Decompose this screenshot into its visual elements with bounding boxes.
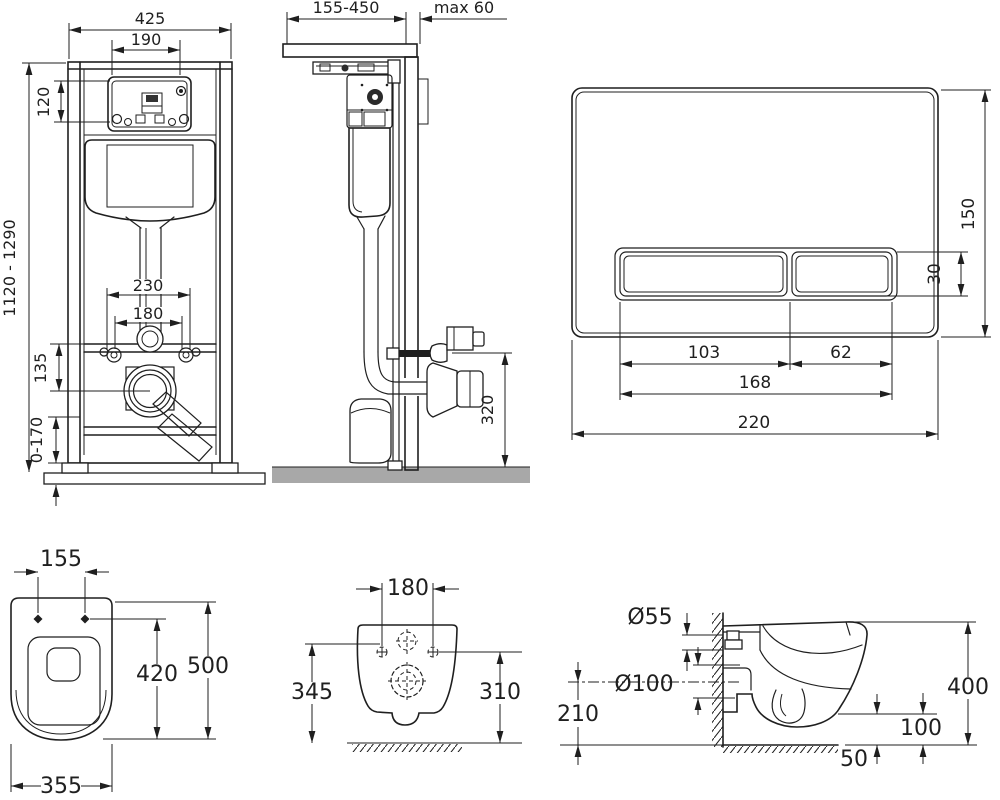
big-flush-button: [620, 252, 787, 296]
bowl-profile: [723, 622, 867, 727]
floor-hatch-side: [723, 746, 838, 753]
service-opening: [108, 77, 191, 131]
dim-label-420: 420: [136, 662, 178, 687]
wall-section: [405, 57, 418, 470]
dim-label-230: 230: [133, 276, 164, 295]
wall-bracket: [418, 79, 428, 124]
dim-label-220: 220: [738, 413, 770, 433]
frame-side-view: 155-450 max 60 320: [272, 0, 530, 483]
dim-label-155: 155: [40, 547, 82, 572]
bowl-side-view: Ø55 Ø100 210 400 100 50: [557, 605, 990, 772]
outlet-stub: [723, 668, 751, 690]
installation-dimensions-drawing: 425 190 120 1120 - 1290 230 180 135 0-17…: [0, 0, 1000, 800]
dim-label-135: 135: [31, 353, 50, 384]
wall-top-section: [283, 44, 417, 57]
inlet-stub: [727, 631, 739, 640]
drain-assembly: [100, 326, 212, 461]
dim-label-120: 120: [34, 87, 53, 118]
dim-label-max-60: max 60: [434, 0, 494, 17]
flush-plate-dimensions: 150 30 103 62 168 220: [572, 90, 991, 440]
small-flush-button: [792, 252, 892, 296]
dim-label-100: 100: [900, 716, 942, 741]
dim-label-500: 500: [187, 654, 229, 679]
frame-front-view: 425 190 120 1120 - 1290 230 180 135 0-17…: [0, 9, 265, 506]
top-bracket: [313, 60, 400, 83]
frame-front-dimensions: 425 190 120 1120 - 1290 230 180 135 0-17…: [0, 9, 231, 506]
bowl-top-view: 155 500 420 355: [11, 547, 229, 799]
dim-label-345: 345: [291, 680, 333, 705]
inlet-pipe: [399, 350, 432, 357]
dim-label-210: 210: [557, 702, 599, 727]
wall-hatch: [712, 613, 723, 747]
technical-drawing-page: 425 190 120 1120 - 1290 230 180 135 0-17…: [0, 0, 1000, 800]
dim-label-dia100: Ø100: [614, 672, 673, 697]
dim-label-155-450: 155-450: [313, 0, 380, 17]
outlet-hole: [388, 662, 426, 700]
dim-label-dia55: Ø55: [627, 605, 672, 630]
right-fixing-hole: [81, 615, 90, 624]
dim-label-320: 320: [478, 395, 497, 426]
left-fixing-hole: [34, 615, 43, 624]
flush-plate-view: 150 30 103 62 168 220: [572, 88, 991, 440]
dim-label-355: 355: [40, 774, 82, 799]
dim-label-400: 400: [947, 675, 989, 700]
dim-label-425: 425: [135, 9, 166, 28]
floor-slab: [44, 473, 265, 484]
dim-label-62: 62: [830, 343, 852, 363]
bowl-opening: [47, 648, 80, 681]
outlet-trap-side: [350, 352, 483, 463]
dim-label-103: 103: [688, 343, 720, 363]
cistern-side: [347, 75, 392, 352]
dim-label-150: 150: [959, 198, 979, 230]
dim-label-50: 50: [840, 747, 868, 772]
dim-label-180-bowl: 180: [387, 576, 429, 601]
bowl-top-dimensions: 155 500 420 355: [11, 547, 229, 799]
floor-hatch-rear: [352, 744, 462, 752]
water-inlet-assembly: [387, 327, 484, 362]
dim-label-1120-1290: 1120 - 1290: [0, 219, 19, 316]
right-foot: [212, 463, 238, 473]
dim-label-180-frame: 180: [133, 304, 164, 323]
bowl-rear-view: 180 345 310: [290, 576, 522, 752]
dim-label-310: 310: [479, 680, 521, 705]
bowl-rear-dimensions: 180 345 310: [290, 576, 522, 743]
dim-label-0-170: 0-170: [27, 417, 46, 464]
dim-label-30: 30: [925, 263, 945, 285]
frame-foot-side: [388, 461, 402, 470]
dim-label-168: 168: [739, 373, 771, 393]
dim-label-190: 190: [131, 30, 162, 49]
left-foot: [62, 463, 88, 473]
inlet-hole: [396, 629, 418, 654]
